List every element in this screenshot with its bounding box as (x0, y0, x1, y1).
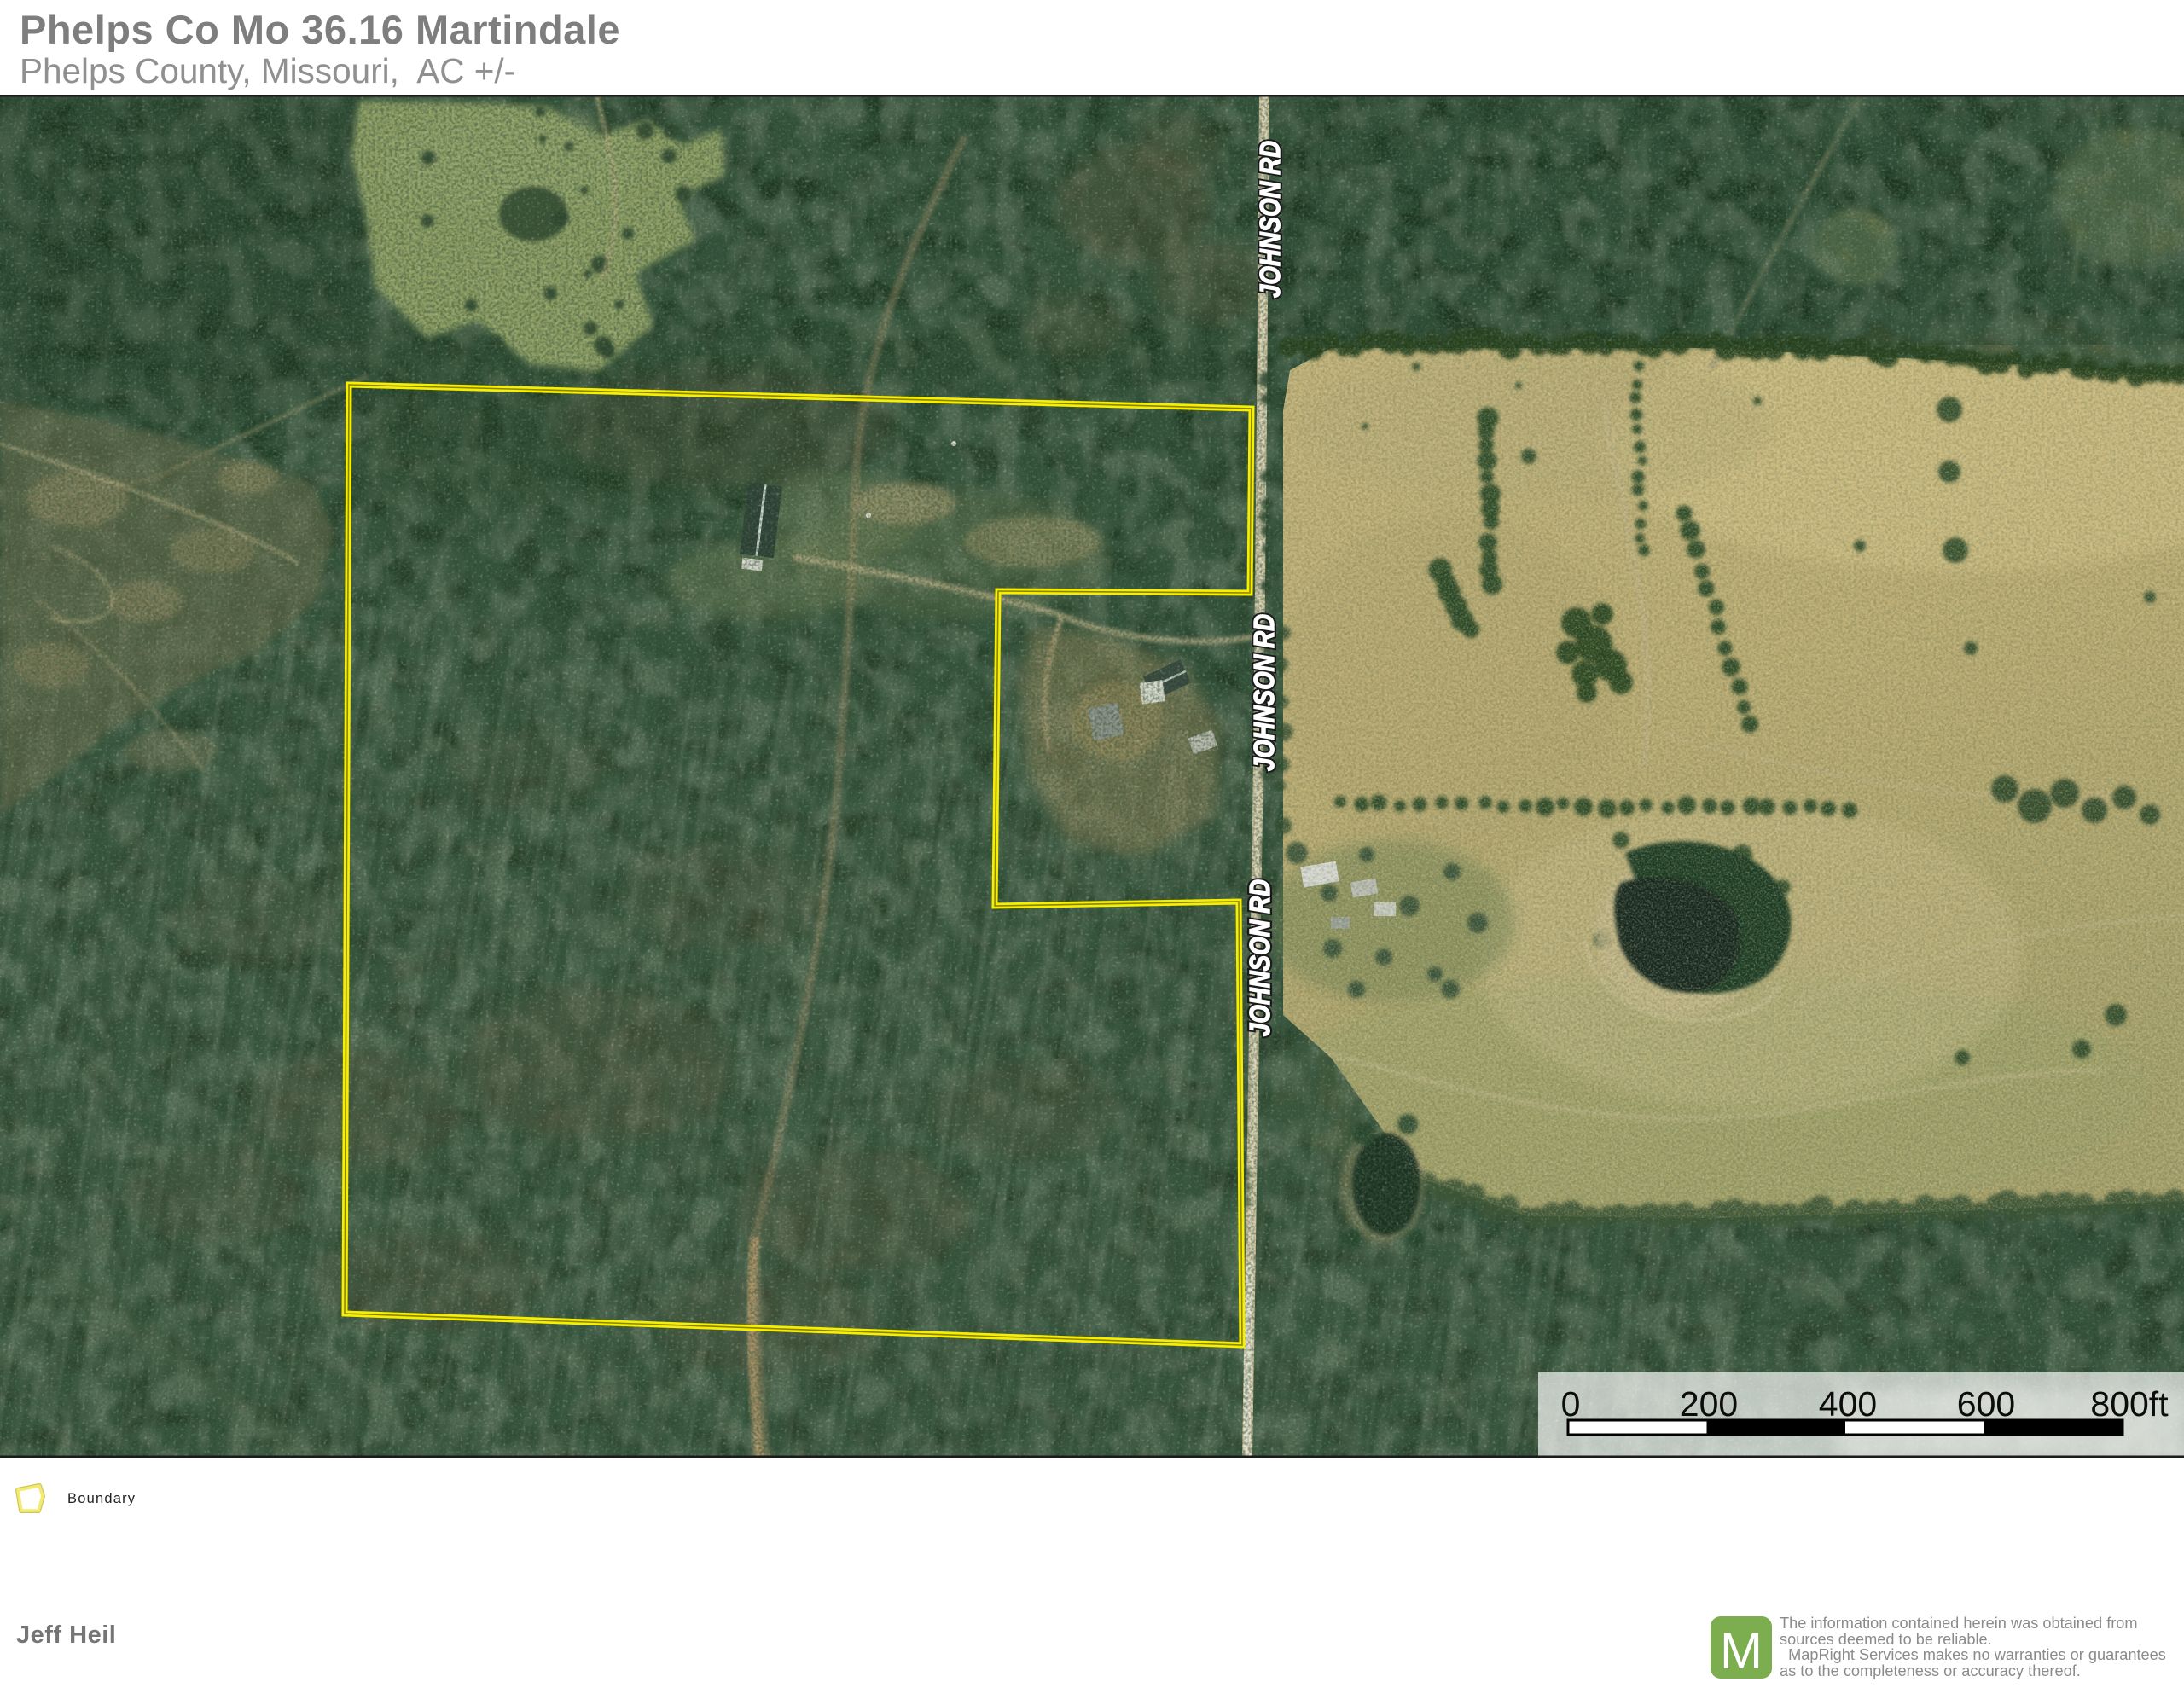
svg-text:400: 400 (1819, 1384, 1877, 1424)
svg-text:600: 600 (1957, 1384, 2015, 1424)
svg-text:JOHNSON RD: JOHNSON RD (1254, 141, 1286, 298)
svg-text:JOHNSON RD: JOHNSON RD (1248, 614, 1280, 771)
svg-text:0: 0 (1561, 1384, 1581, 1424)
svg-text:M: M (1720, 1622, 1763, 1679)
svg-text:JOHNSON RD: JOHNSON RD (1244, 879, 1275, 1036)
svg-text:800ft: 800ft (2090, 1384, 2169, 1424)
svg-text:200: 200 (1680, 1384, 1738, 1424)
